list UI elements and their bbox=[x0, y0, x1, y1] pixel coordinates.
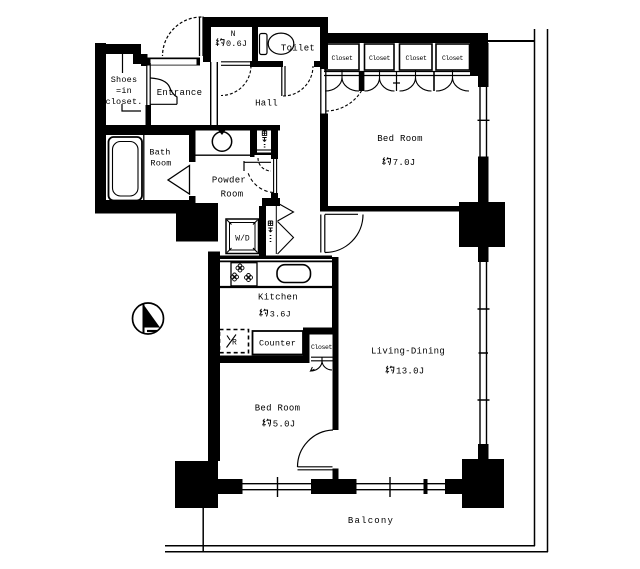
svg-text:Shoes: Shoes bbox=[111, 75, 138, 85]
svg-text:Bath: Bath bbox=[149, 148, 170, 158]
svg-text:Living-Dining: Living-Dining bbox=[371, 347, 445, 357]
svg-text:Counter: Counter bbox=[259, 339, 296, 349]
svg-text:0.6J: 0.6J bbox=[226, 39, 247, 49]
svg-text:Closet: Closet bbox=[331, 55, 353, 62]
svg-text:13.0J: 13.0J bbox=[396, 367, 425, 377]
svg-text:R: R bbox=[232, 339, 237, 348]
svg-text:N: N bbox=[231, 30, 236, 39]
svg-text:W/D: W/D bbox=[235, 235, 250, 244]
svg-text:Toilet: Toilet bbox=[281, 44, 315, 54]
svg-text:Hall: Hall bbox=[255, 99, 278, 109]
svg-text:Closet: Closet bbox=[369, 55, 391, 62]
svg-text:Bed Room: Bed Room bbox=[377, 134, 423, 144]
svg-text:closet.: closet. bbox=[105, 97, 142, 107]
svg-text:Balcony: Balcony bbox=[348, 516, 394, 526]
svg-text:Entrance: Entrance bbox=[157, 88, 203, 98]
svg-text:Closet: Closet bbox=[442, 55, 464, 62]
svg-text:Kitchen: Kitchen bbox=[258, 293, 298, 303]
svg-text:Bed Room: Bed Room bbox=[255, 404, 301, 414]
svg-text:Room: Room bbox=[221, 190, 244, 200]
svg-text:Powder: Powder bbox=[212, 176, 246, 186]
svg-text:3.6J: 3.6J bbox=[270, 310, 291, 320]
svg-text:Room: Room bbox=[150, 159, 171, 169]
svg-text:7.0J: 7.0J bbox=[393, 158, 416, 168]
svg-text:5.0J: 5.0J bbox=[273, 420, 296, 430]
svg-text:=in: =in bbox=[116, 86, 132, 96]
svg-text:Closet: Closet bbox=[405, 55, 427, 62]
svg-text:Closet: Closet bbox=[311, 344, 333, 351]
